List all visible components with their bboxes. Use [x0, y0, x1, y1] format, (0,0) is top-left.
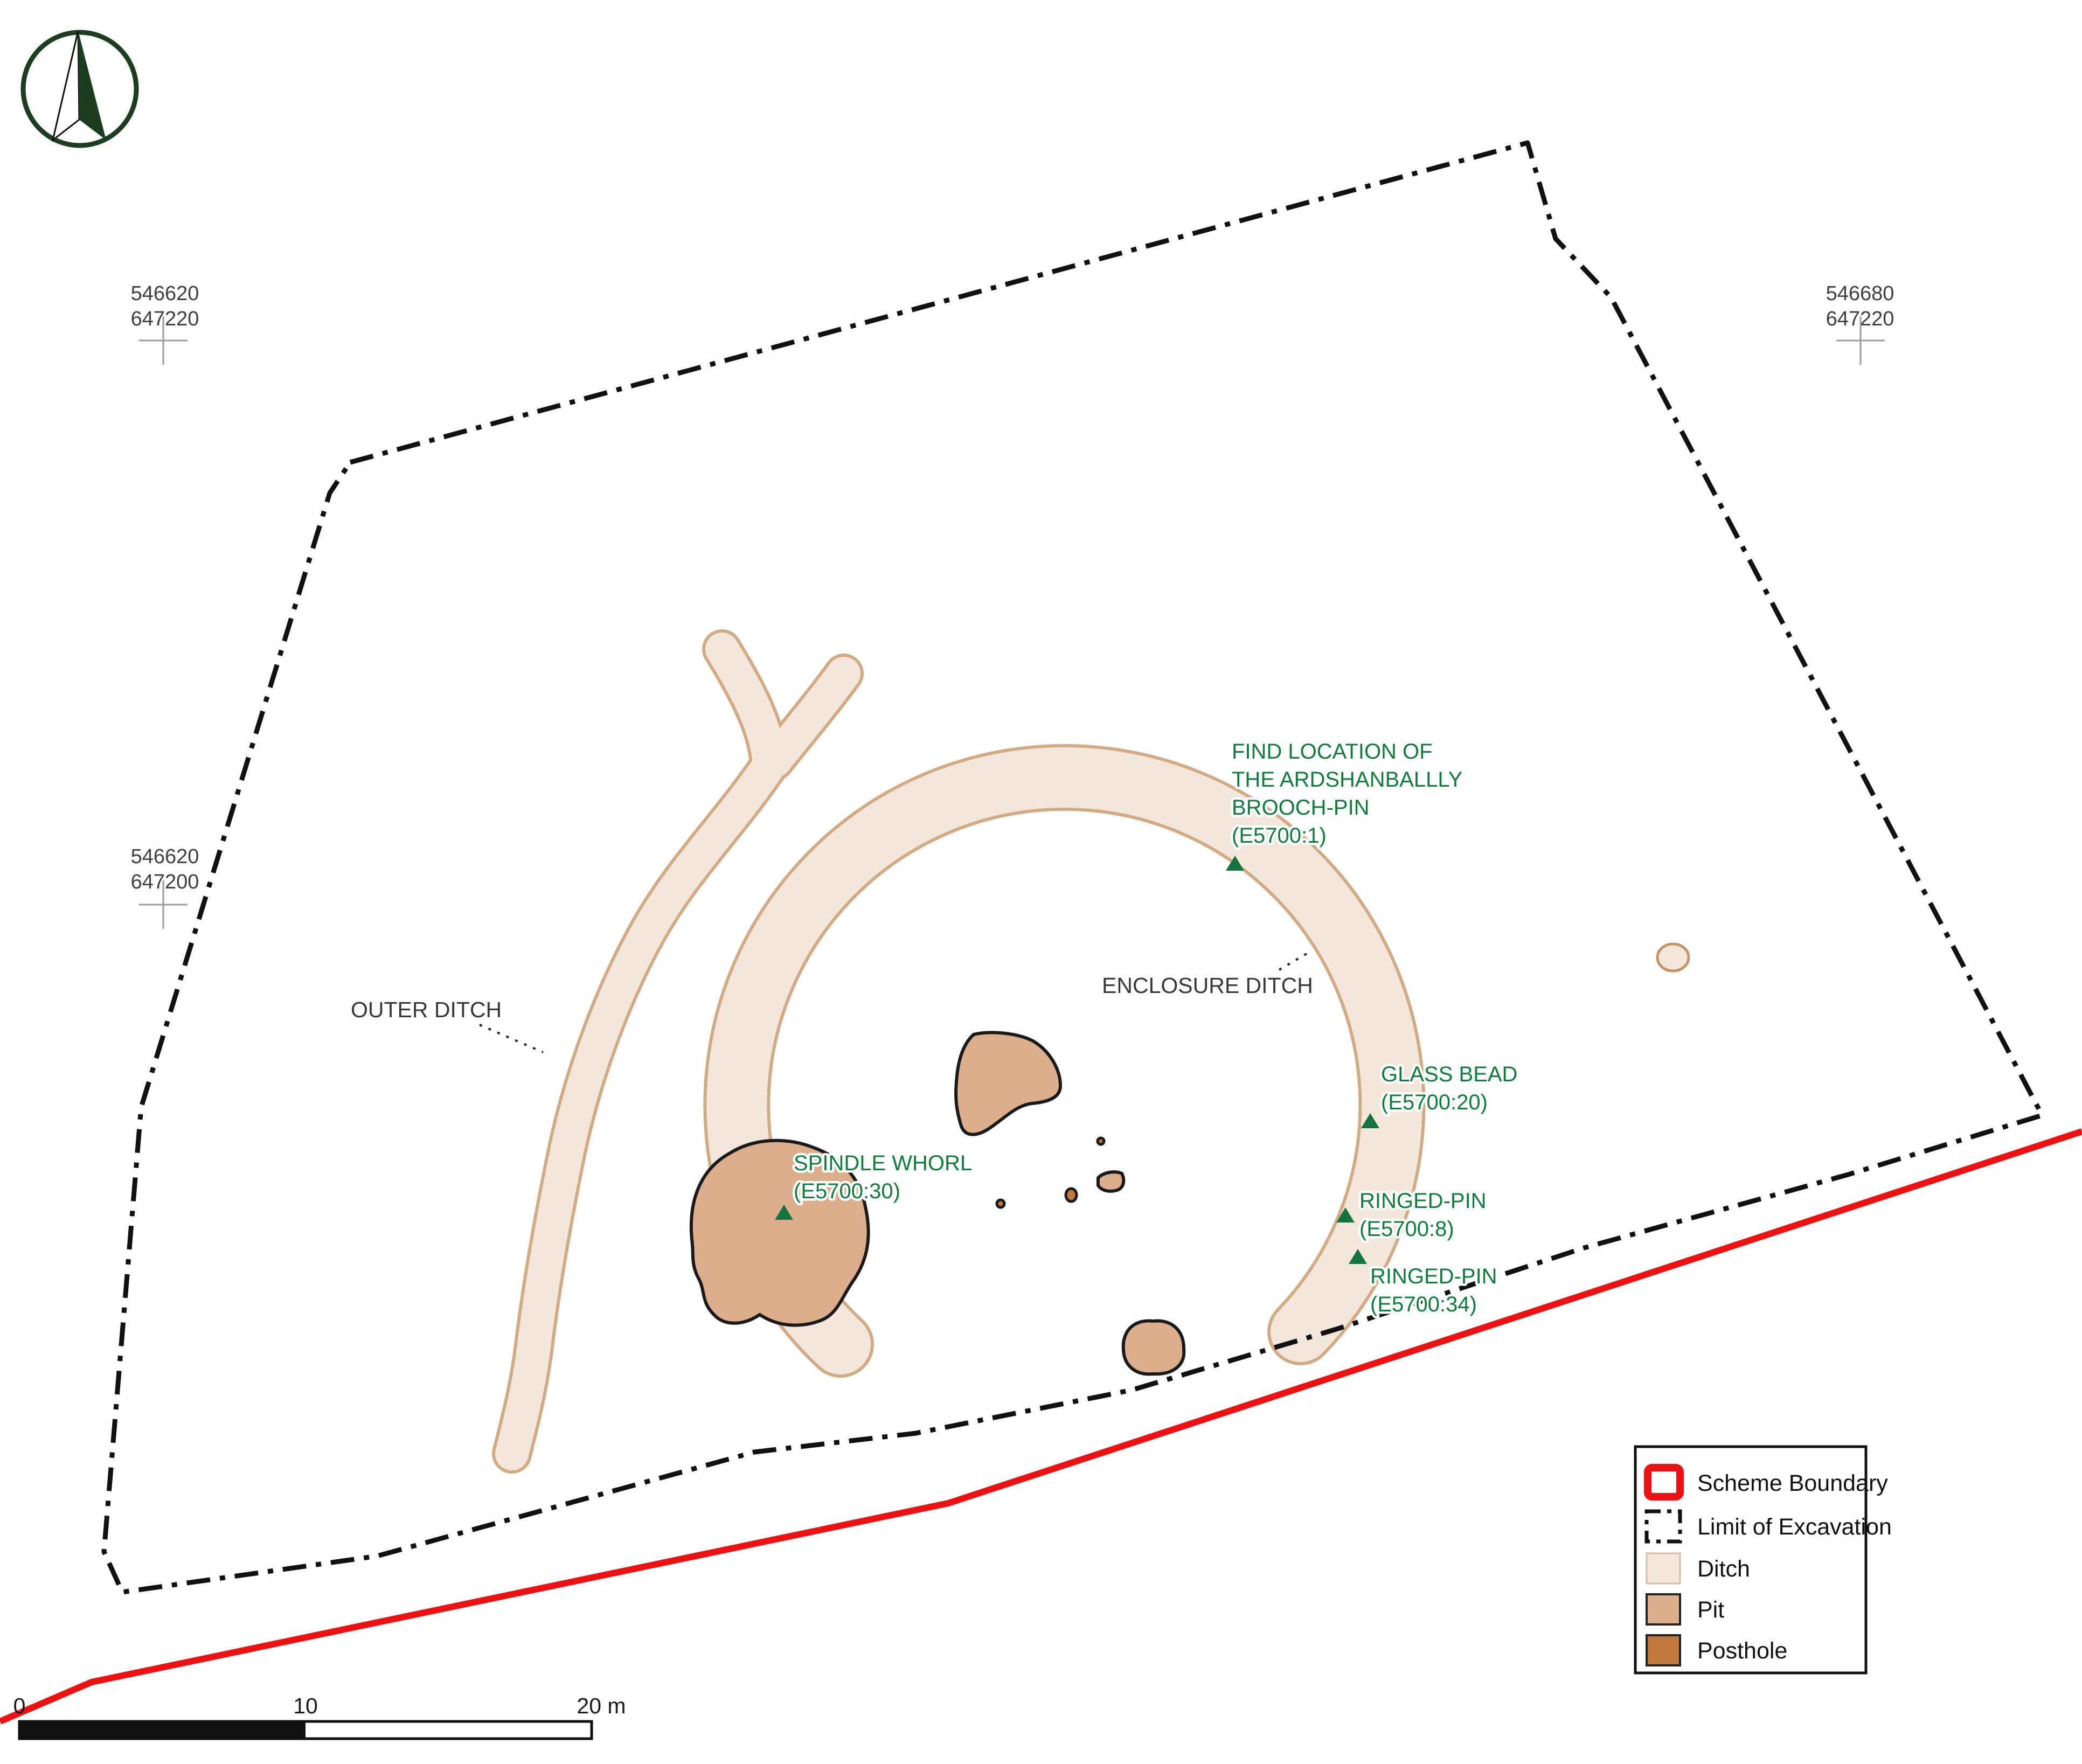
legend-label-pit: Pit — [1697, 1597, 1724, 1623]
legend-swatch-scheme-boundary — [1648, 1468, 1680, 1497]
posthole-features — [997, 1138, 1104, 1207]
limit-of-excavation-boundary — [104, 143, 2042, 1592]
enclosure-ditch-leader-line — [1279, 952, 1310, 970]
posthole — [997, 1200, 1004, 1207]
grid-reference: 546680 647220 — [1826, 282, 1894, 365]
grid-references: 546620 647220 546680 647220 546620 64720… — [131, 282, 1894, 929]
posthole — [1098, 1138, 1104, 1144]
legend-label-scheme-boundary: Scheme Boundary — [1697, 1470, 1888, 1496]
find-label-line: RINGED-PIN — [1359, 1189, 1487, 1213]
find-label-line: SPINDLE WHORL — [794, 1151, 971, 1175]
find-label-line: (E5700:30) — [794, 1179, 900, 1203]
find-label-line: RINGED-PIN — [1370, 1265, 1497, 1288]
find-label-line: (E5700:8) — [1359, 1217, 1454, 1241]
site-plan-canvas: OUTER DITCH ENCLOSURE DITCH 546620 64722… — [0, 0, 2082, 1764]
outer-ditch-label: OUTER DITCH — [351, 997, 502, 1022]
site-plan-map: OUTER DITCH ENCLOSURE DITCH 546620 64722… — [0, 0, 2082, 1764]
scale-bar-filled-half — [19, 1721, 306, 1739]
grid-reference: 546620 647200 — [131, 845, 199, 929]
find-label-line: THE ARDSHANBALLLY — [1232, 768, 1462, 791]
grid-northing: 647220 — [131, 308, 199, 330]
north-arrow-right-half — [78, 31, 106, 140]
find-label-brooch-pin: FIND LOCATION OF THE ARDSHANBALLLY BROOC… — [1232, 740, 1468, 848]
grid-easting: 546620 — [131, 845, 199, 868]
legend-swatch-limit-of-excavation — [1647, 1511, 1680, 1541]
find-label-line: GLASS BEAD — [1381, 1062, 1517, 1086]
grid-reference: 546620 647220 — [131, 282, 199, 365]
small-ditch-patch — [1657, 944, 1689, 971]
north-arrow-icon — [23, 31, 136, 145]
scale-tick-10: 10 — [293, 1693, 318, 1718]
north-arrow-left-half — [53, 31, 79, 140]
legend-label-posthole: Posthole — [1697, 1638, 1787, 1664]
scale-tick-0: 0 — [13, 1693, 26, 1718]
scale-tick-20m: 20 m — [577, 1693, 626, 1718]
grid-easting: 546680 — [1826, 282, 1894, 305]
find-label-line: (E5700:1) — [1232, 824, 1327, 848]
ditch-features — [512, 649, 1689, 1454]
legend-swatch-posthole — [1647, 1635, 1680, 1665]
south-pit — [1123, 1321, 1184, 1374]
central-pit — [956, 1032, 1060, 1134]
small-wedge-pit — [1098, 1172, 1123, 1191]
find-label-line: (E5700:20) — [1381, 1091, 1488, 1114]
grid-easting: 546620 — [131, 282, 199, 305]
posthole — [1066, 1189, 1077, 1202]
legend: Scheme Boundary Limit of Excavation Ditc… — [1635, 1447, 1892, 1673]
feature-annotations: OUTER DITCH ENCLOSURE DITCH — [351, 952, 1313, 1052]
legend-swatch-ditch — [1647, 1553, 1680, 1584]
find-label-line: (E5700:34) — [1370, 1293, 1477, 1316]
grid-northing: 647200 — [131, 871, 199, 893]
legend-label-limit-of-excavation: Limit of Excavation — [1697, 1514, 1892, 1540]
find-label-line: FIND LOCATION OF — [1232, 740, 1433, 763]
find-label-ringed-pin-34: RINGED-PIN (E5700:34) — [1370, 1265, 1503, 1316]
legend-label-ditch: Ditch — [1697, 1556, 1750, 1582]
outer-ditch-leader-line — [480, 1025, 543, 1052]
scale-bar: 0 10 20 m — [13, 1693, 626, 1739]
enclosure-ditch-label: ENCLOSURE DITCH — [1102, 973, 1313, 998]
find-label-line: BROOCH-PIN — [1232, 796, 1370, 820]
legend-swatch-pit — [1647, 1594, 1680, 1624]
